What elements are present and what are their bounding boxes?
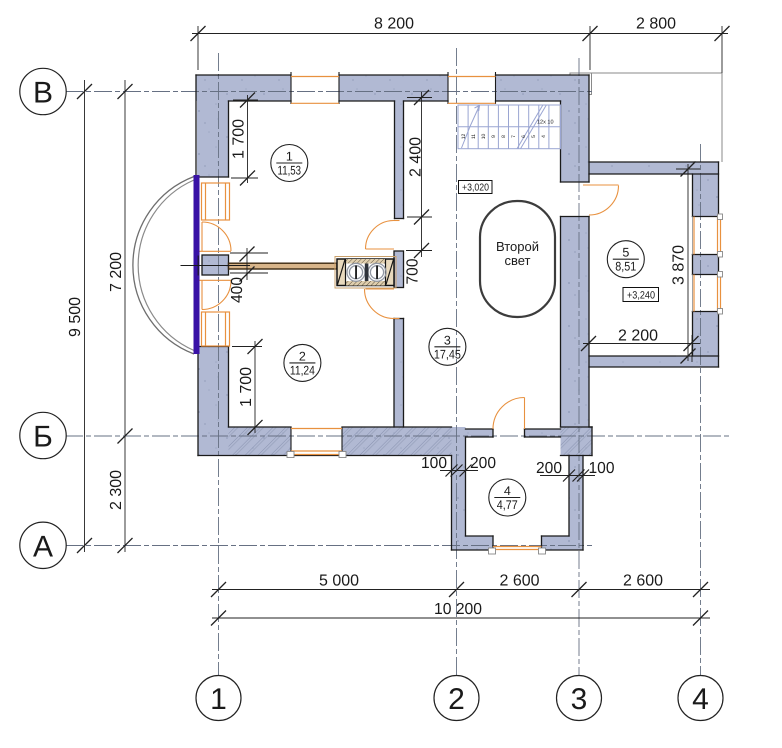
- svg-text:10: 10: [481, 134, 487, 140]
- svg-text:12x 10: 12x 10: [537, 120, 554, 126]
- svg-text:2 600: 2 600: [500, 573, 540, 590]
- svg-text:В: В: [33, 77, 53, 110]
- svg-text:8: 8: [501, 135, 507, 138]
- svg-text:+3,240: +3,240: [627, 290, 655, 302]
- svg-text:200: 200: [536, 460, 562, 477]
- svg-text:1 700: 1 700: [238, 367, 255, 407]
- svg-text:100: 100: [589, 460, 615, 477]
- svg-text:Б: Б: [33, 421, 53, 454]
- svg-text:4: 4: [504, 484, 511, 498]
- svg-text:5 000: 5 000: [319, 573, 359, 590]
- svg-text:2 800: 2 800: [636, 16, 676, 33]
- svg-text:100: 100: [421, 455, 447, 472]
- svg-text:4: 4: [692, 683, 709, 716]
- svg-text:10 200: 10 200: [434, 601, 482, 618]
- svg-text:400: 400: [229, 277, 246, 303]
- svg-text:7: 7: [511, 135, 517, 138]
- svg-text:Второй: Второй: [496, 239, 539, 254]
- svg-text:9: 9: [491, 135, 497, 138]
- svg-text:11,24: 11,24: [290, 363, 315, 377]
- svg-text:8 200: 8 200: [374, 16, 414, 33]
- svg-text:12: 12: [461, 134, 467, 140]
- svg-text:1 700: 1 700: [231, 119, 248, 159]
- svg-text:2 300: 2 300: [108, 470, 125, 510]
- svg-text:7 200: 7 200: [108, 252, 125, 292]
- svg-text:+3,020: +3,020: [462, 183, 489, 194]
- svg-text:2: 2: [299, 349, 306, 363]
- svg-text:9 500: 9 500: [67, 297, 84, 337]
- svg-text:11: 11: [471, 134, 477, 139]
- svg-text:700: 700: [405, 258, 422, 284]
- svg-text:2 600: 2 600: [623, 573, 663, 590]
- svg-text:3: 3: [444, 333, 451, 347]
- svg-text:17,45: 17,45: [434, 347, 461, 361]
- svg-text:11,53: 11,53: [278, 164, 302, 178]
- svg-text:2: 2: [448, 683, 465, 716]
- svg-text:2 200: 2 200: [618, 328, 658, 345]
- svg-text:4,77: 4,77: [497, 498, 518, 512]
- svg-text:4: 4: [541, 135, 547, 138]
- svg-text:5: 5: [622, 246, 629, 260]
- svg-text:5: 5: [531, 135, 537, 138]
- svg-text:3: 3: [571, 683, 588, 716]
- svg-text:2 400: 2 400: [408, 137, 425, 177]
- svg-text:1: 1: [210, 683, 227, 716]
- svg-text:А: А: [33, 530, 53, 563]
- svg-text:свет: свет: [504, 253, 530, 268]
- svg-text:1: 1: [286, 150, 293, 164]
- svg-text:3 870: 3 870: [671, 245, 688, 285]
- svg-text:200: 200: [470, 455, 496, 472]
- svg-text:6: 6: [521, 135, 527, 138]
- svg-text:8,51: 8,51: [615, 260, 636, 274]
